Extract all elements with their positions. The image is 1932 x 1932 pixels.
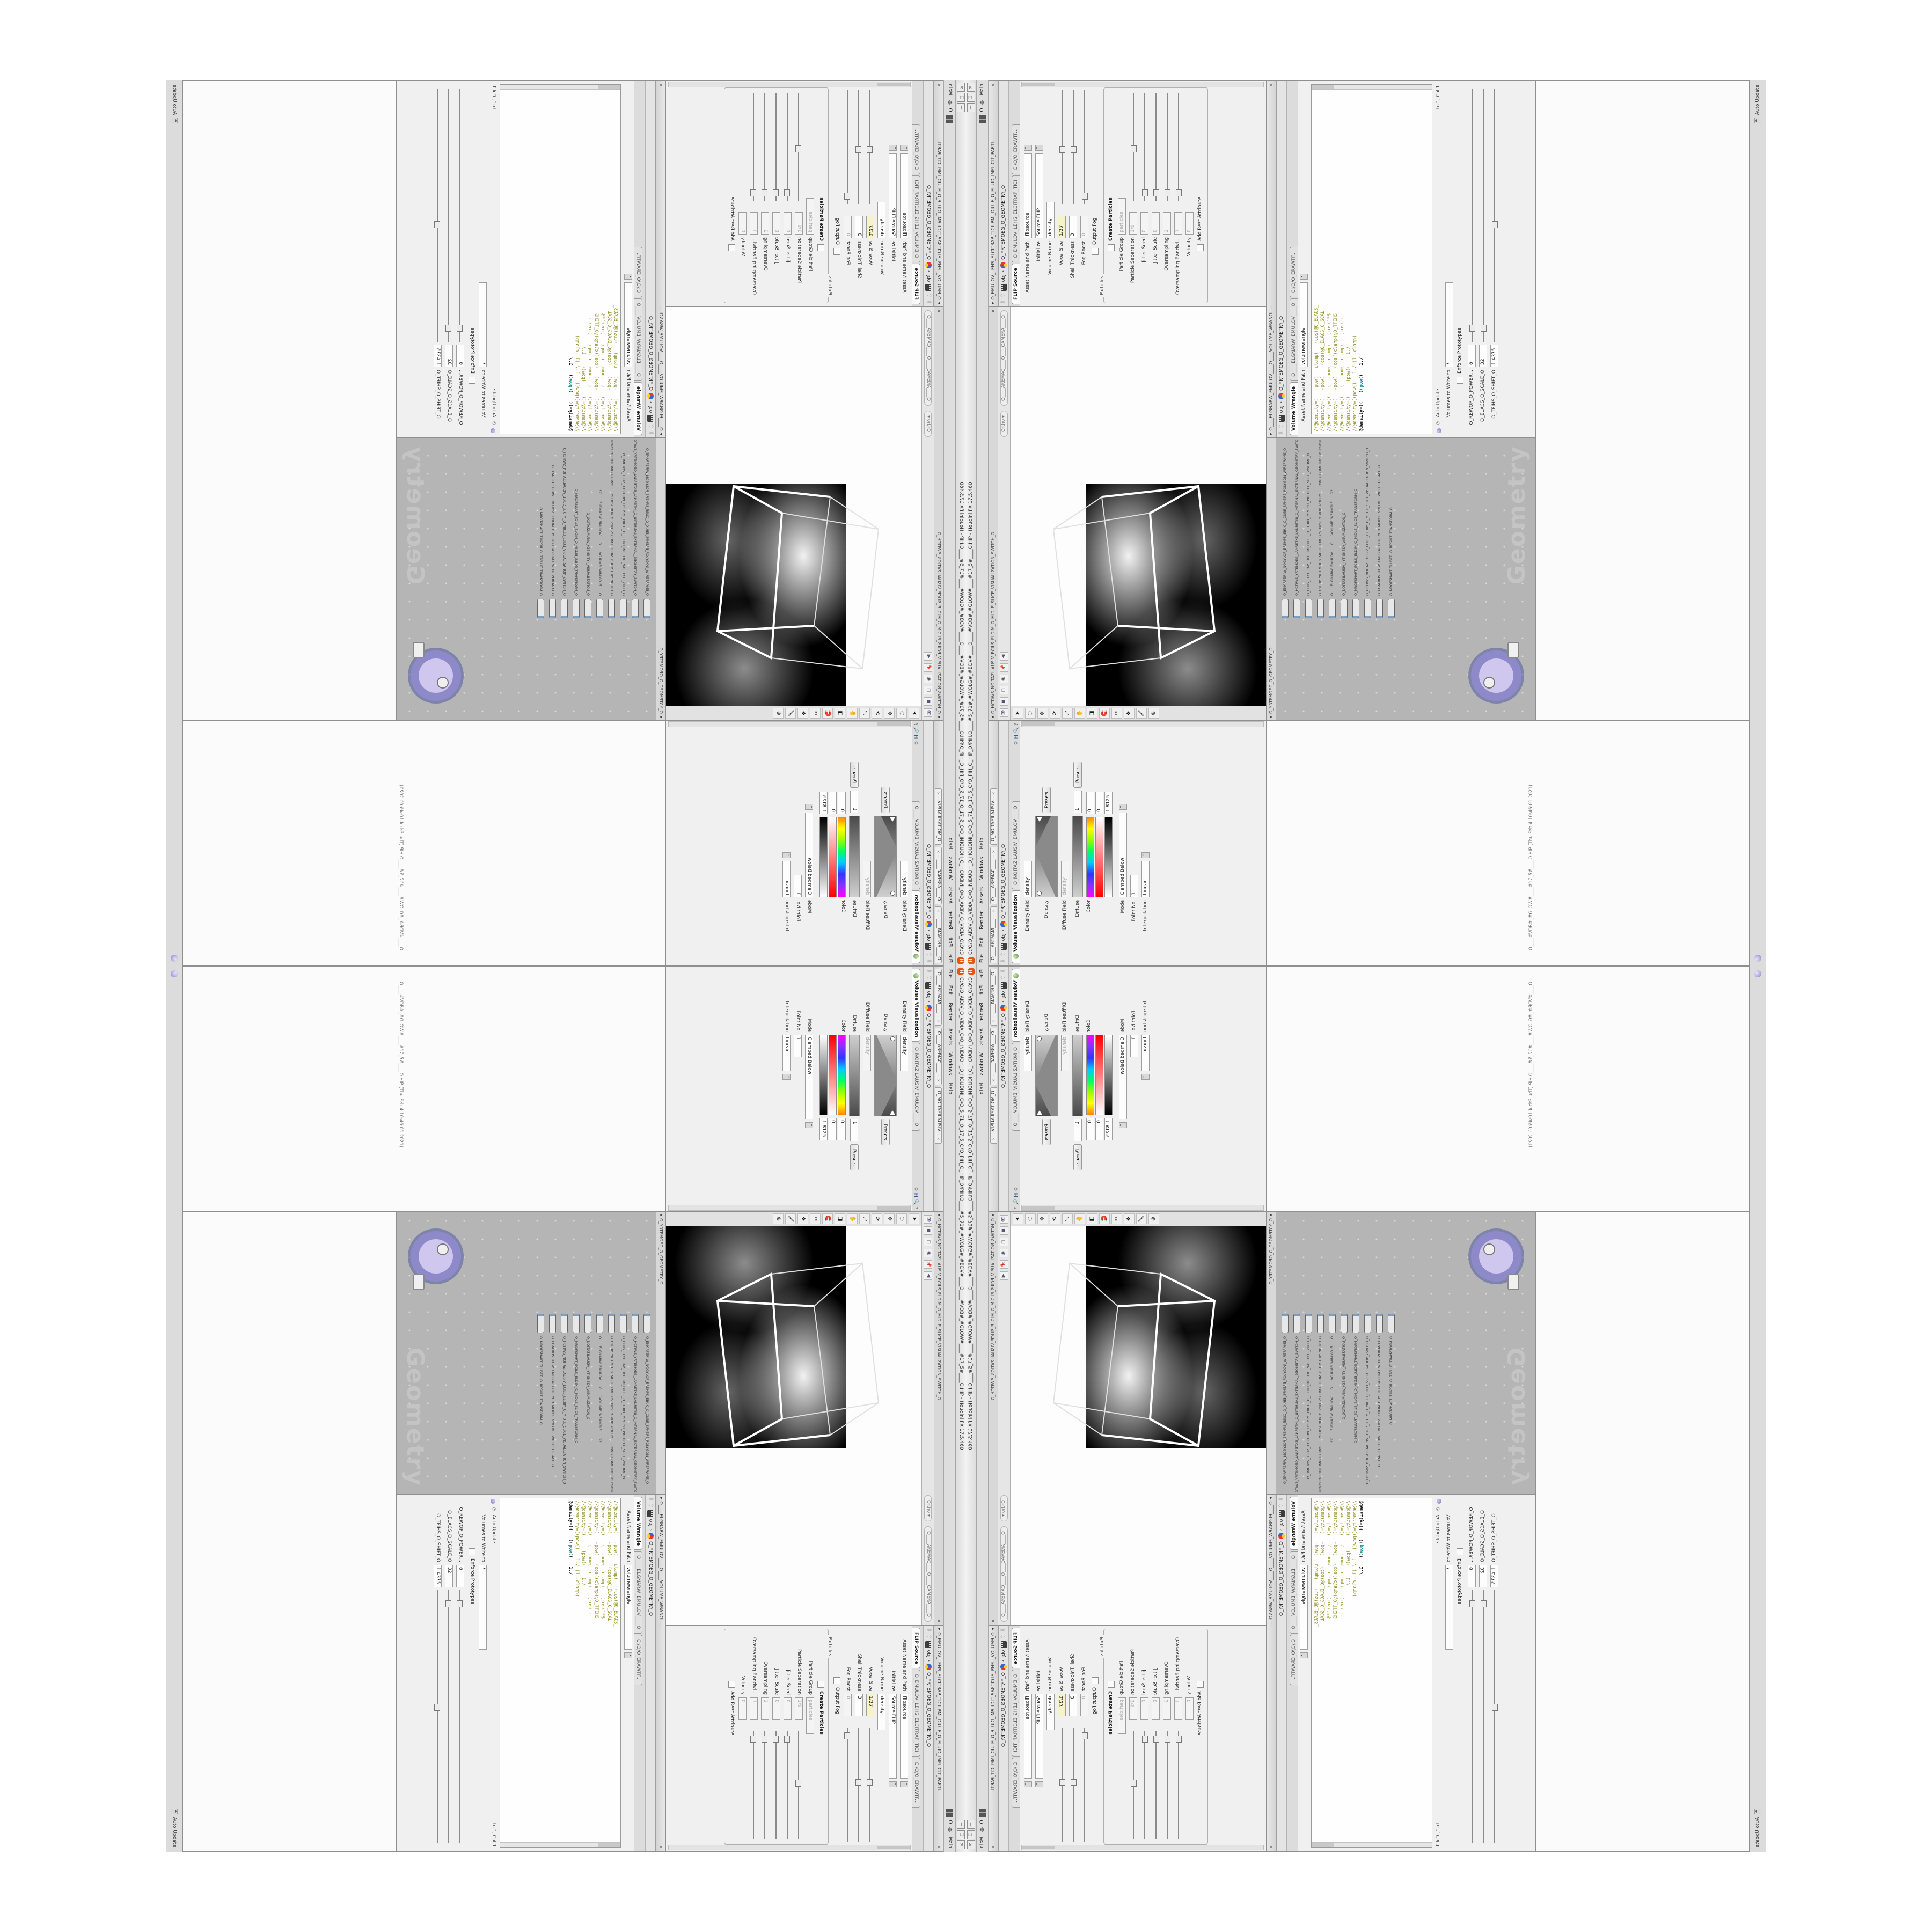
slider-handle[interactable] bbox=[1131, 1780, 1137, 1787]
viewport-tool-icon[interactable]: ⟳ bbox=[872, 1213, 882, 1224]
param-input[interactable]: particles bbox=[1118, 1697, 1126, 1734]
menu-item[interactable]: File bbox=[947, 969, 953, 978]
diffuse-point-input[interactable]: 1 bbox=[851, 1119, 859, 1141]
nav-down-icon[interactable]: ⇩ bbox=[647, 1497, 654, 1501]
param-input[interactable]: 0 bbox=[1152, 1697, 1160, 1720]
maximize-button[interactable]: ❐ bbox=[957, 93, 965, 102]
param-slider[interactable] bbox=[1494, 1590, 1495, 1843]
node-shape[interactable] bbox=[1329, 599, 1336, 618]
display-node[interactable] bbox=[413, 642, 425, 658]
param-input[interactable]: 0 bbox=[738, 212, 747, 235]
snapshot-icon[interactable]: ◉ bbox=[1000, 675, 1008, 683]
desktop-menu[interactable]: Main bbox=[979, 84, 985, 96]
viewport-tool-icon[interactable]: ✋ bbox=[847, 708, 858, 719]
ortho-pill[interactable]: Ortho ▾ bbox=[1000, 1495, 1008, 1521]
layout-label[interactable]: O bbox=[979, 108, 985, 112]
camera-pill[interactable]: O____AREMAC____O____CAMERA____O bbox=[924, 1526, 932, 1622]
param-slider[interactable] bbox=[787, 1731, 788, 1839]
close-icon[interactable]: ✕ bbox=[936, 1619, 941, 1623]
network-node[interactable]: O_HCTIWS_YRTEMOEG_LANRETXE_LANRETNI_O_IN… bbox=[1293, 440, 1300, 618]
node-shape[interactable] bbox=[1329, 1314, 1336, 1333]
viewport-tool-icon[interactable]: ◨ bbox=[1087, 708, 1097, 719]
spinner-icon[interactable]: ◂▸ bbox=[1754, 1809, 1761, 1814]
slider-handle[interactable] bbox=[435, 221, 441, 228]
network-graph[interactable]: Geometry O_EMARFERIW_NOGYLOP_EREHPS_EBUC… bbox=[1276, 1212, 1535, 1494]
path-root[interactable]: obj bbox=[926, 933, 931, 941]
refresh-icon[interactable]: ⟳ bbox=[490, 421, 496, 425]
tab-operator-name[interactable]: O_NOITAZILAUSIV_EMULOV____O bbox=[1012, 1043, 1020, 1131]
hue-input[interactable]: 0 bbox=[838, 1118, 846, 1140]
path-node[interactable]: O_YRTEMOEG_O_GEOMETRY_O bbox=[1001, 1672, 1006, 1747]
path-root[interactable]: obj bbox=[648, 405, 653, 413]
volumes-input[interactable]: * bbox=[479, 282, 487, 367]
visibility-icon[interactable]: 👁 bbox=[1000, 1215, 1008, 1224]
density-ramp[interactable] bbox=[874, 816, 897, 897]
param-input[interactable]: flipsource bbox=[1024, 153, 1032, 238]
value-input[interactable]: 1.8125 bbox=[1104, 792, 1113, 814]
network-graph[interactable]: Geometry O_EMARFERIW_NOGYLOP_EREHPS_EBUC… bbox=[397, 1212, 656, 1494]
network-node[interactable]: O_NOITAZILAUSIV_(YTISNED)_VISUALIZATION_… bbox=[1341, 440, 1348, 618]
collapse-triangle-icon[interactable]: ▾ bbox=[658, 1497, 663, 1499]
network-node[interactable]: O_LEHS_ELCITRAP_TICILPMI_DIULF_O_FLUID_I… bbox=[620, 440, 627, 618]
tab-operator-name[interactable]: O____ELGNARW_EMULOV____O bbox=[634, 298, 642, 381]
tab-operator-name[interactable]: O____ELGNARW_EMULOV____O bbox=[1290, 298, 1298, 381]
add-rest-checkbox[interactable] bbox=[1197, 1681, 1204, 1688]
nav-down-icon[interactable]: ⇩ bbox=[925, 959, 932, 963]
param-input[interactable]: particles bbox=[806, 1697, 814, 1734]
param-slider[interactable] bbox=[1167, 93, 1168, 201]
search-icon[interactable]: 🔍 bbox=[913, 727, 918, 733]
saturation-bar[interactable] bbox=[1095, 1035, 1103, 1115]
param-input[interactable]: 1/27 bbox=[1058, 1694, 1066, 1716]
nav-down-icon[interactable]: ⇩ bbox=[925, 300, 932, 304]
param-input[interactable]: 0 bbox=[784, 1697, 792, 1720]
param-slider[interactable] bbox=[1167, 1731, 1168, 1839]
node-shape[interactable] bbox=[1305, 1314, 1312, 1333]
nav-down-icon[interactable]: ⇩ bbox=[1000, 969, 1007, 973]
slider-handle[interactable] bbox=[1071, 1779, 1077, 1786]
layout-icon[interactable] bbox=[946, 115, 954, 123]
saturation-input[interactable]: 0 bbox=[1095, 792, 1103, 814]
menu-item[interactable]: File bbox=[979, 954, 985, 963]
dropdown-icon[interactable]: ▾ bbox=[1141, 852, 1150, 858]
menu-item[interactable]: Help bbox=[947, 838, 953, 850]
interpolation-select[interactable]: Linear bbox=[1141, 1035, 1150, 1071]
viewport-tool-icon[interactable]: ✥ bbox=[884, 708, 895, 719]
pane-tab-camera[interactable]: O____AREMAC____...✕ bbox=[990, 1028, 997, 1085]
search-icon[interactable]: 🔍 bbox=[913, 1199, 918, 1205]
slider-handle[interactable] bbox=[762, 1736, 768, 1743]
viewport-tool-icon[interactable]: 🖌 bbox=[1136, 1213, 1147, 1224]
spinner-icon[interactable]: ◂▸ bbox=[171, 118, 178, 123]
density-field-input[interactable]: density bbox=[900, 1035, 908, 1071]
nav-up-icon[interactable]: ⇧ bbox=[925, 293, 932, 297]
diffuse-presets-button[interactable]: Presets bbox=[850, 762, 859, 788]
dropdown-icon[interactable]: ▾ bbox=[624, 274, 632, 280]
menu-item[interactable]: Render bbox=[947, 911, 953, 930]
nav-down-icon[interactable]: ⇩ bbox=[1000, 1628, 1007, 1632]
path-root[interactable]: obj bbox=[1001, 274, 1006, 282]
viewport-render-area[interactable] bbox=[1011, 1226, 1266, 1625]
hue-bar[interactable] bbox=[1086, 817, 1094, 897]
diffuse-ramp[interactable] bbox=[849, 816, 860, 897]
node-shape[interactable] bbox=[1376, 1314, 1383, 1333]
viewport-tool-icon[interactable]: 🧲 bbox=[1099, 708, 1110, 719]
density-ramp[interactable] bbox=[1035, 816, 1058, 897]
layout-label[interactable]: O bbox=[947, 108, 952, 112]
network-node[interactable]: O_HCTIWS_YRTEMOEG_LANRETXE_LANRETNI_O_IN… bbox=[1293, 1314, 1300, 1492]
menu-item[interactable]: Render bbox=[979, 1002, 985, 1021]
tab-volume-visualization[interactable]: Volume Visualization bbox=[912, 890, 920, 963]
slider-handle[interactable] bbox=[1153, 1736, 1159, 1743]
param-input[interactable]: 0 bbox=[844, 216, 852, 238]
volvis-scrollbar[interactable] bbox=[668, 1205, 911, 1211]
menu-item[interactable]: Help bbox=[979, 838, 985, 850]
refresh-icon[interactable]: ⟳ bbox=[490, 1507, 496, 1511]
param-input[interactable]: 3 bbox=[1069, 216, 1077, 238]
path-root[interactable]: obj bbox=[1279, 405, 1284, 413]
menu-item[interactable]: File bbox=[979, 969, 985, 978]
saturation-bar[interactable] bbox=[1095, 817, 1103, 897]
network-node[interactable]: O_HCTIWS_YRTEMOEG_LANRETXE_LANRETNI_O_IN… bbox=[632, 1314, 639, 1492]
viewport-tool-icon[interactable]: ➤ bbox=[909, 708, 919, 719]
desktop-menu[interactable]: Main bbox=[947, 1837, 952, 1849]
param-input[interactable]: 0 bbox=[772, 1697, 780, 1720]
network-node[interactable]: O_LEHS_ELCITRAP_TICILPMI_DIULF_O_FLUID_I… bbox=[1305, 440, 1312, 618]
param-input[interactable]: Source FLIP bbox=[889, 153, 897, 238]
asset-name-input[interactable]: volumewrangle bbox=[1300, 1565, 1308, 1650]
close-button[interactable]: ✕ bbox=[967, 83, 975, 92]
param-slider[interactable] bbox=[1472, 89, 1473, 342]
nav-up-icon[interactable]: ⇧ bbox=[1000, 293, 1007, 297]
path-root[interactable]: obj bbox=[1001, 933, 1006, 941]
node-shape[interactable] bbox=[1376, 599, 1383, 618]
network-node[interactable]: O_MROFSNART_TLUSER_O_RESULT_TRANSFORM_O bbox=[537, 1314, 544, 1492]
param-slider[interactable] bbox=[870, 1728, 871, 1842]
viewport-tool-icon[interactable]: 🧲 bbox=[822, 1213, 833, 1224]
collapse-triangle-icon[interactable]: ▾ bbox=[1269, 716, 1274, 718]
node-shape[interactable] bbox=[608, 1314, 615, 1333]
viewport-render-area[interactable] bbox=[666, 1226, 921, 1625]
collapse-triangle-icon[interactable]: ▾ bbox=[991, 302, 997, 304]
output-fog-checkbox[interactable] bbox=[833, 248, 840, 255]
nav-up-icon[interactable]: ⇧ bbox=[925, 1634, 932, 1638]
menu-item[interactable]: Edit bbox=[979, 985, 985, 995]
viewport-tool-icon[interactable]: 🖌 bbox=[785, 1213, 796, 1224]
viewport-tool-icon[interactable]: ⤢ bbox=[859, 1213, 870, 1224]
close-icon[interactable]: ✕ bbox=[1269, 83, 1275, 87]
param-input[interactable]: 0 bbox=[1152, 212, 1160, 235]
output-node-badge[interactable] bbox=[411, 650, 461, 701]
path-node[interactable]: O_YRTEMOEG_O_GEOMETRY_O bbox=[648, 1541, 653, 1616]
node-shape[interactable] bbox=[596, 1314, 603, 1333]
close-icon[interactable]: ✕ bbox=[936, 1845, 941, 1849]
param-slider[interactable] bbox=[1483, 1590, 1484, 1843]
path-node[interactable]: O_YRTEMOEG_O_GEOMETRY_O bbox=[1001, 844, 1006, 919]
param-input[interactable]: Source FLIP bbox=[1035, 153, 1043, 238]
param-slider[interactable] bbox=[1062, 90, 1063, 204]
viewport-render-area[interactable] bbox=[1011, 307, 1266, 706]
menu-item[interactable]: Windows bbox=[947, 1052, 953, 1075]
code-scrollbar[interactable] bbox=[500, 85, 620, 90]
slider-handle[interactable] bbox=[1469, 325, 1475, 332]
close-tab-icon[interactable]: ✕ bbox=[992, 1079, 996, 1082]
pane-tab-mantra[interactable]: O____ARTNAM____...✕ bbox=[990, 906, 997, 963]
slider-handle[interactable] bbox=[1153, 189, 1159, 196]
tab-file-path[interactable]: C:/O/O_ERAWTF... bbox=[1012, 124, 1020, 174]
collapse-icon[interactable]: ◀ bbox=[924, 652, 932, 661]
path-node[interactable]: O_YRTEMOEG_O_GEOMETRY_O bbox=[926, 1013, 931, 1088]
param-slider[interactable] bbox=[799, 1731, 800, 1839]
param-input[interactable]: particles bbox=[1118, 198, 1126, 235]
network-node[interactable]: O_NOITAZILAUSIV_(YTISNED)_VISUALIZATION_… bbox=[584, 1314, 591, 1492]
gear-icon[interactable]: ⚙ bbox=[1014, 741, 1019, 745]
close-tab-icon[interactable]: ✕ bbox=[936, 792, 940, 795]
dropdown-icon[interactable]: ▾ bbox=[1035, 145, 1043, 151]
houdini-help-icon[interactable]: H bbox=[1014, 735, 1020, 739]
viewport-tool-icon[interactable]: ✥ bbox=[1037, 708, 1048, 719]
param-slider[interactable] bbox=[753, 1731, 755, 1839]
slider-handle[interactable] bbox=[785, 189, 791, 196]
nav-up-icon[interactable]: ⇧ bbox=[1278, 424, 1285, 428]
code-scrollbar[interactable] bbox=[1312, 85, 1432, 90]
value-input[interactable]: 1.8125 bbox=[819, 792, 828, 814]
network-graph[interactable]: Geometry O_EMARFERIW_NOGYLOP_EREHPS_EBUC… bbox=[397, 438, 656, 720]
point-no-input[interactable]: 1 bbox=[1130, 1035, 1138, 1057]
slider-handle[interactable] bbox=[1165, 189, 1170, 196]
wireframe-icon[interactable]: ◻ bbox=[924, 1238, 932, 1246]
search-icon[interactable]: 🔍 bbox=[1014, 727, 1019, 733]
enforce-prototypes-checkbox[interactable] bbox=[1457, 1548, 1463, 1555]
network-node[interactable]: O____ELGNARW_EMULOV____O____VOLUME_WRANG… bbox=[596, 1314, 603, 1492]
viewport-tool-icon[interactable]: 🖌 bbox=[785, 708, 796, 719]
maximize-button[interactable]: ❐ bbox=[967, 1830, 975, 1839]
close-icon[interactable]: ✕ bbox=[658, 83, 663, 87]
interpolation-select[interactable]: Linear bbox=[1141, 861, 1150, 897]
close-tab-icon[interactable]: ✕ bbox=[936, 1137, 940, 1140]
help-icon[interactable]: ? bbox=[913, 723, 918, 726]
path-node[interactable]: O_YRTEMOEG_O_GEOMETRY_O bbox=[1001, 185, 1006, 260]
dropdown-icon[interactable]: ▾ bbox=[1119, 1122, 1127, 1128]
viewport-tool-icon[interactable]: ✂ bbox=[1111, 1213, 1122, 1224]
viewport-tool-icon[interactable]: ✥ bbox=[1037, 1213, 1048, 1224]
auto-update-toggle[interactable]: Auto Update bbox=[1436, 389, 1441, 417]
node-shape[interactable] bbox=[584, 1314, 591, 1333]
pane-tab-camera[interactable]: O____AREMAC____...✕ bbox=[990, 847, 997, 904]
slider-handle[interactable] bbox=[1492, 1704, 1498, 1711]
tab-flip-source[interactable]: FLIP Source bbox=[1012, 264, 1020, 304]
viewport-tool-icon[interactable]: ⤢ bbox=[1062, 1213, 1073, 1224]
diffuse-ramp[interactable] bbox=[1072, 1035, 1083, 1116]
param-slider[interactable] bbox=[776, 1731, 777, 1839]
node-shape[interactable] bbox=[643, 1314, 650, 1333]
param-input[interactable]: Source FLIP bbox=[889, 1694, 897, 1779]
power-input[interactable]: 6 bbox=[1468, 345, 1476, 367]
nav-down-icon[interactable]: ⇩ bbox=[1278, 431, 1285, 435]
param-slider[interactable] bbox=[799, 93, 800, 201]
layout-icon[interactable] bbox=[979, 115, 986, 123]
slider-handle[interactable] bbox=[1142, 1736, 1148, 1743]
tab-operator-name[interactable]: O_EMULOV_LEHS_ELCITRAP_TICI bbox=[1012, 175, 1020, 262]
asset-name-input[interactable]: volumewrangle bbox=[1300, 282, 1308, 367]
visibility-icon[interactable]: 👁 bbox=[1000, 708, 1008, 717]
network-path[interactable]: O_YRTEMOEG_O_GEOMETRY_O bbox=[1269, 1218, 1274, 1284]
param-input[interactable]: 2 bbox=[761, 1697, 769, 1720]
nav-up-icon[interactable]: ⇧ bbox=[1000, 1634, 1007, 1638]
slider-handle[interactable] bbox=[1082, 193, 1088, 200]
close-icon[interactable]: ✕ bbox=[936, 83, 941, 87]
vex-code-editor[interactable]: //@density=( -pow( clamp( (cos(@O_ELACS_… bbox=[500, 1498, 621, 1848]
slider-handle[interactable] bbox=[845, 193, 851, 200]
snapshot-icon[interactable]: ◉ bbox=[924, 675, 932, 683]
param-input[interactable]: 1/9 bbox=[795, 212, 803, 235]
path-root[interactable]: obj bbox=[1001, 991, 1006, 999]
collapse-triangle-icon[interactable]: ▾ bbox=[936, 302, 941, 304]
density-presets-button[interactable]: Presets bbox=[881, 1119, 890, 1145]
network-node[interactable]: O_HCTIWS_NOITAZILAUSIV_ECILS_ELDIM_O_MID… bbox=[1364, 440, 1371, 618]
node-shape[interactable] bbox=[1388, 1314, 1395, 1333]
tab-file-path[interactable]: C:/O/O_ERAWTF... bbox=[1012, 1758, 1020, 1808]
output-fog-checkbox[interactable] bbox=[1092, 248, 1099, 255]
network-node[interactable]: O_LEHS_ELCITRAP_TICILPMI_DIULF_O_FLUID_I… bbox=[620, 1314, 627, 1492]
param-slider[interactable] bbox=[753, 93, 755, 201]
param-slider[interactable] bbox=[460, 89, 461, 342]
slider-handle[interactable] bbox=[785, 1736, 791, 1743]
dropdown-icon[interactable]: ▾ bbox=[1141, 1074, 1150, 1080]
slider-handle[interactable] bbox=[446, 1600, 452, 1607]
volvis-scrollbar[interactable] bbox=[668, 721, 911, 727]
diffuse-field-input[interactable]: density bbox=[1061, 861, 1069, 897]
tab-flip-source[interactable]: FLIP Source bbox=[912, 1628, 920, 1668]
path-root[interactable]: obj bbox=[926, 991, 931, 999]
param-slider[interactable] bbox=[1144, 1731, 1145, 1839]
pane-tab-camera[interactable]: O____AREMAC____...✕ bbox=[935, 1028, 942, 1085]
collapse-icon[interactable]: ◀ bbox=[1000, 652, 1008, 661]
create-particles-checkbox[interactable] bbox=[817, 1681, 824, 1688]
diffuse-point-input[interactable]: 1 bbox=[1074, 1119, 1082, 1141]
slider-handle[interactable] bbox=[1469, 1600, 1475, 1607]
param-input[interactable]: 1/9 bbox=[1129, 212, 1137, 235]
auto-update-control[interactable]: ◂▸ Auto Update bbox=[1754, 1809, 1761, 1847]
enforce-prototypes-checkbox[interactable] bbox=[1457, 377, 1463, 384]
network-node[interactable]: O_HCTIWS_NOITAZILAUSIV_ECILS_ELDIM_O_MID… bbox=[1364, 1314, 1371, 1492]
density-ramp[interactable] bbox=[1035, 1035, 1058, 1116]
node-shape[interactable] bbox=[549, 1314, 556, 1333]
shift-input[interactable]: 1.4375 bbox=[1490, 345, 1498, 367]
ramp-marker-end[interactable] bbox=[1037, 817, 1042, 822]
flip-scrollbar[interactable] bbox=[1021, 82, 1264, 87]
diffuse-presets-button[interactable]: Presets bbox=[1073, 1144, 1082, 1170]
close-icon[interactable]: ✕ bbox=[991, 83, 997, 87]
camera-pill[interactable]: O____AREMAC____O____CAMERA____O bbox=[924, 310, 932, 406]
tab-file-path[interactable]: C:/O/O_ERAWTF... bbox=[1290, 247, 1298, 297]
visibility-icon[interactable]: 👁 bbox=[924, 708, 932, 717]
value-input[interactable]: 1.8125 bbox=[1104, 1118, 1113, 1140]
collapse-triangle-icon[interactable]: ▾ bbox=[1269, 1497, 1275, 1499]
menu-item[interactable]: Help bbox=[947, 1082, 953, 1094]
camera-pill[interactable]: O____AREMAC____O____CAMERA____O bbox=[1000, 310, 1008, 406]
network-node[interactable]: O_GYLOP_YRTEMOEG_MORF_EMULOV_BDV_O_VDB_V… bbox=[608, 1314, 615, 1492]
node-shape[interactable] bbox=[561, 599, 568, 618]
layout-icon[interactable] bbox=[979, 1809, 986, 1817]
pane-tab-camera[interactable]: O____AREMAC____...✕ bbox=[935, 847, 942, 904]
path-root[interactable]: obj bbox=[926, 274, 931, 282]
value-input[interactable]: 1.8125 bbox=[819, 1118, 828, 1140]
volvis-scrollbar[interactable] bbox=[1021, 721, 1264, 727]
dropdown-icon[interactable]: ▾ bbox=[1300, 1652, 1308, 1658]
collapse-triangle-icon[interactable]: ▾ bbox=[991, 716, 996, 718]
node-shape[interactable] bbox=[1293, 1314, 1300, 1333]
viewport-tool-icon[interactable]: ✂ bbox=[810, 1213, 821, 1224]
node-shape[interactable] bbox=[1317, 599, 1324, 618]
power-input[interactable]: 6 bbox=[456, 1565, 464, 1587]
power-input[interactable]: 6 bbox=[1468, 1565, 1476, 1587]
network-node[interactable]: O_MROFSNART_TLUSER_O_RESULT_TRANSFORM_O bbox=[537, 440, 544, 618]
node-shape[interactable] bbox=[537, 599, 544, 618]
tab-volume-wrangle[interactable]: Volume Wrangle bbox=[1290, 382, 1298, 435]
output-fog-checkbox[interactable] bbox=[833, 1677, 840, 1684]
viewport-tool-icon[interactable]: ⊕ bbox=[773, 708, 784, 719]
ramp-marker-start[interactable] bbox=[890, 891, 895, 896]
spinner-icon[interactable]: ◂▸ bbox=[1754, 118, 1761, 123]
density-presets-button[interactable]: Presets bbox=[1042, 1119, 1051, 1145]
shade-icon[interactable]: ◼ bbox=[924, 1226, 932, 1235]
mode-select[interactable]: Clamped Below bbox=[805, 813, 813, 897]
network-node[interactable]: O_MROFSNART_ECILS_ELDIM_O_MIDLE_SLICE_TR… bbox=[573, 1314, 580, 1492]
menu-item[interactable]: Windows bbox=[947, 857, 953, 880]
param-slider[interactable] bbox=[1494, 89, 1495, 342]
node-shape[interactable] bbox=[1364, 1314, 1371, 1333]
node-shape[interactable] bbox=[643, 599, 650, 618]
nav-up-icon[interactable]: ⇧ bbox=[925, 975, 932, 979]
menu-item[interactable]: Edit bbox=[979, 937, 985, 947]
viewport-tool-icon[interactable]: 🧲 bbox=[1099, 1213, 1110, 1224]
path-node[interactable]: O_YRTEMOEG_O_GEOMETRY_O bbox=[648, 316, 653, 391]
node-shape[interactable] bbox=[620, 599, 627, 618]
collapse-triangle-icon[interactable]: ▾ bbox=[936, 716, 941, 718]
slider-handle[interactable] bbox=[1071, 146, 1077, 153]
param-input[interactable]: Source FLIP bbox=[1035, 1694, 1043, 1779]
dropdown-icon[interactable]: ▾ bbox=[900, 145, 908, 151]
node-shape[interactable] bbox=[608, 599, 615, 618]
viewport-tool-icon[interactable]: ◌ bbox=[1025, 708, 1036, 719]
param-input[interactable]: 0 bbox=[1140, 212, 1148, 235]
maximize-button[interactable]: ❐ bbox=[967, 93, 975, 102]
slider-handle[interactable] bbox=[845, 1732, 851, 1739]
param-slider[interactable] bbox=[765, 93, 766, 201]
density-field-input[interactable]: density bbox=[1024, 861, 1032, 897]
houdini-help-icon[interactable]: H bbox=[912, 735, 919, 739]
viewport-tool-icon[interactable]: ➤ bbox=[1013, 1213, 1023, 1224]
param-input[interactable]: 2 bbox=[761, 212, 769, 235]
nav-down-icon[interactable]: ⇩ bbox=[647, 431, 654, 435]
node-shape[interactable] bbox=[573, 599, 580, 618]
network-node[interactable]: O_ECAFRUS_HTIW_EMULOV_EGREM_O_MERGE_VOLU… bbox=[1376, 440, 1383, 618]
collapse-triangle-icon[interactable]: ▾ bbox=[1269, 433, 1275, 435]
pin-icon[interactable]: 📌 bbox=[1000, 663, 1008, 672]
node-shape[interactable] bbox=[1317, 1314, 1324, 1333]
auto-update-control[interactable]: ◂▸ Auto Update bbox=[171, 1809, 178, 1847]
slider-handle[interactable] bbox=[1142, 189, 1148, 196]
ramp-marker-start[interactable] bbox=[1037, 891, 1042, 896]
param-slider[interactable] bbox=[1084, 90, 1085, 204]
shade-icon[interactable]: ◼ bbox=[1000, 697, 1008, 706]
tab-volume-visualization[interactable]: Volume Visualization bbox=[912, 969, 920, 1042]
viewport-render-area[interactable] bbox=[666, 307, 921, 706]
diffuse-point-input[interactable]: 1 bbox=[851, 791, 859, 813]
hue-input[interactable]: 0 bbox=[1086, 1118, 1094, 1140]
node-shape[interactable] bbox=[537, 1314, 544, 1333]
